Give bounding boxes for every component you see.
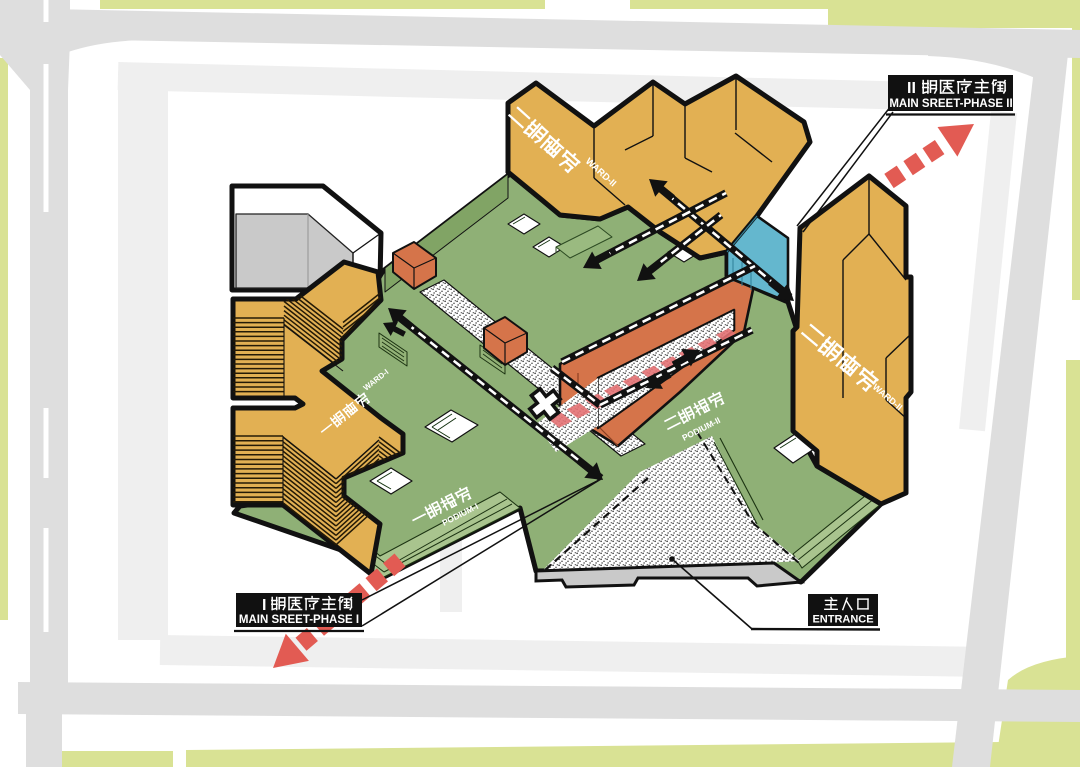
svg-text:ENTRANCE: ENTRANCE — [812, 614, 873, 626]
svg-text:II: II — [907, 80, 916, 97]
svg-text:MAIN SREET-PHASE I: MAIN SREET-PHASE I — [239, 614, 359, 626]
svg-text:I: I — [262, 597, 266, 614]
svg-text:MAIN SREET-PHASE II: MAIN SREET-PHASE II — [889, 98, 1012, 110]
